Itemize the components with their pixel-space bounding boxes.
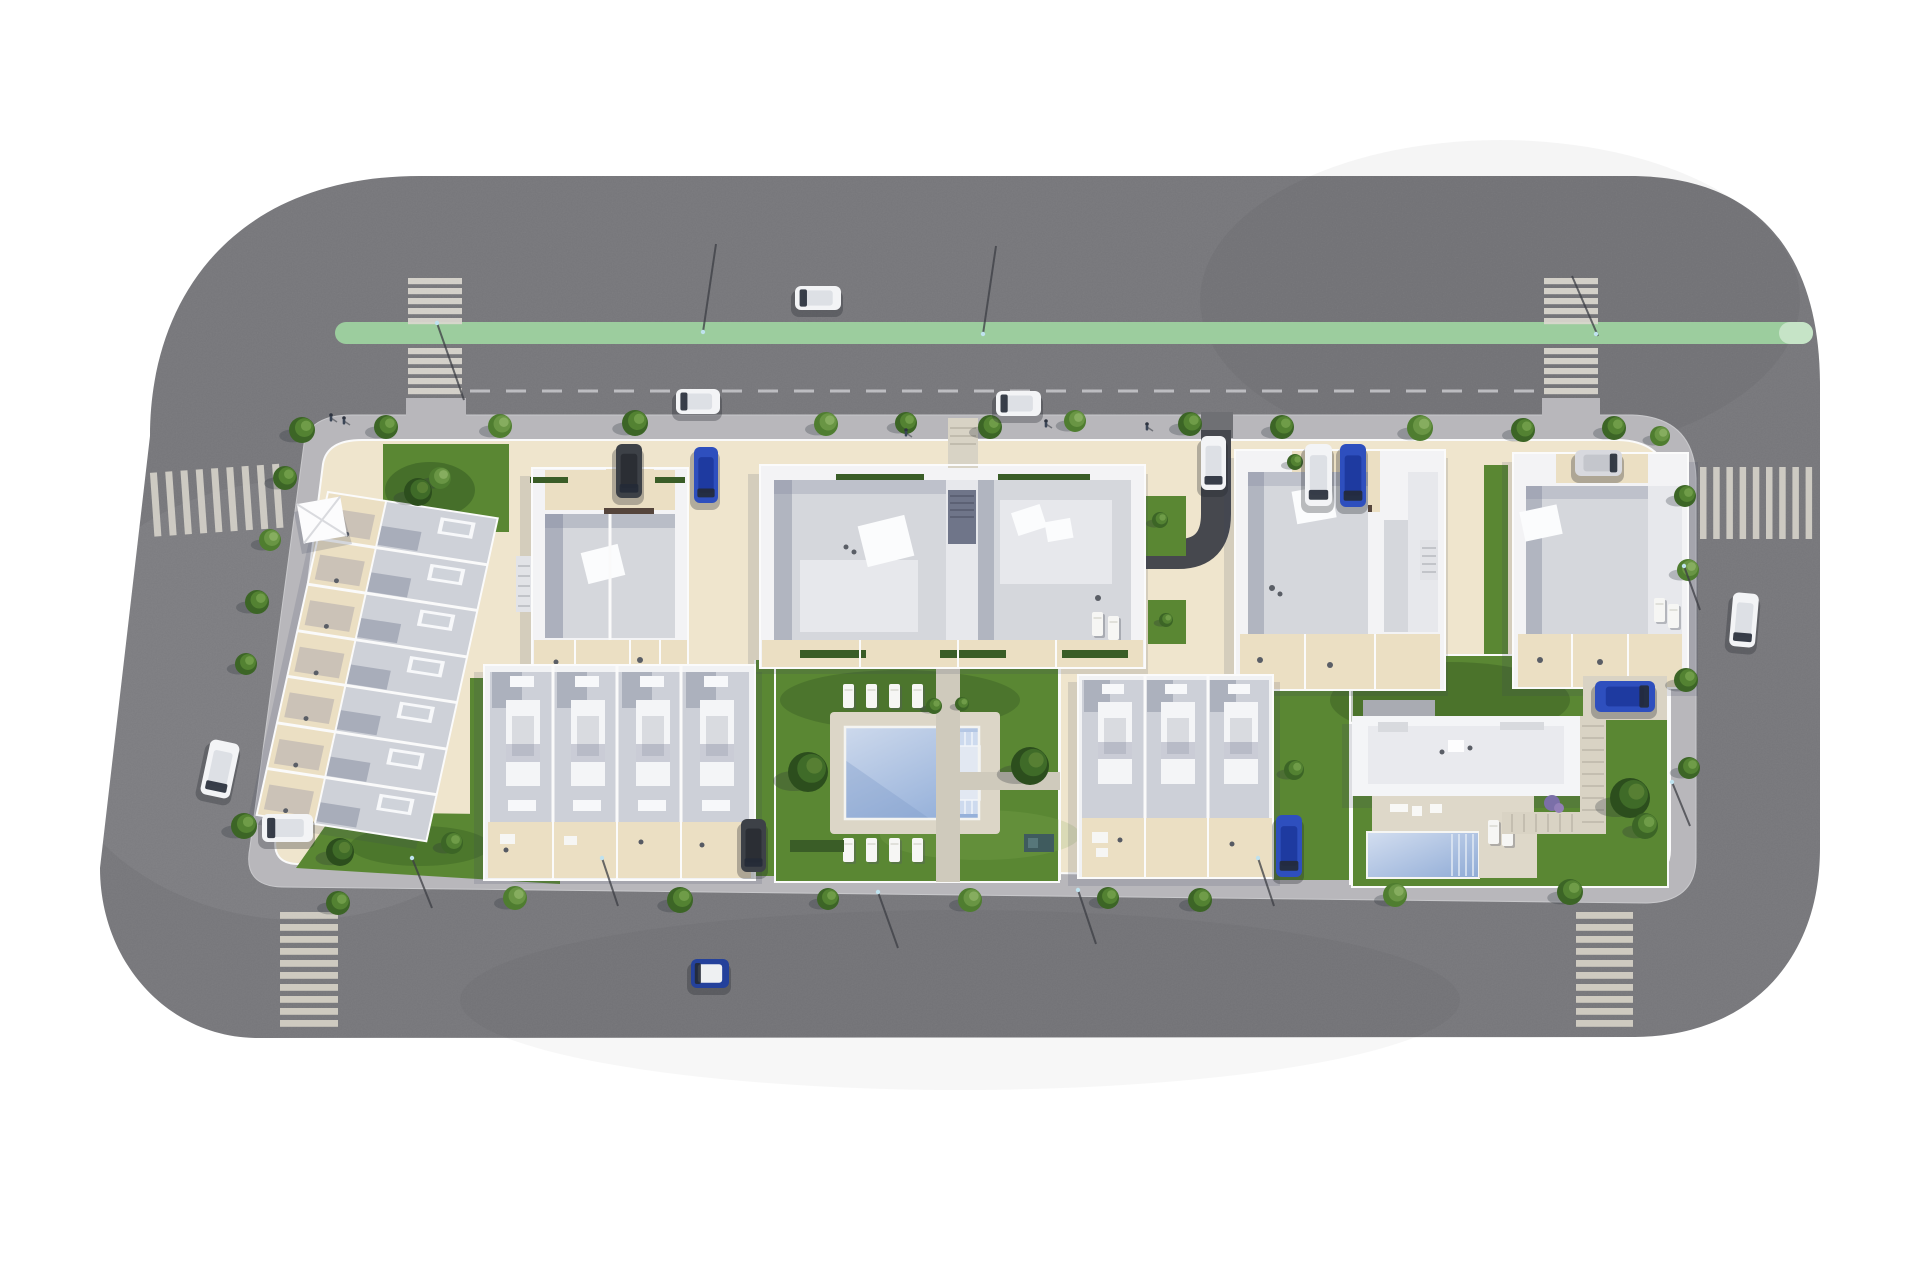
block-f-u1-sky — [1102, 684, 1124, 694]
tree-canopy-light — [1028, 752, 1043, 767]
crosswalk-stripe — [1576, 996, 1633, 1003]
car-white-internal-driveway — [1197, 436, 1228, 497]
crosswalk-stripe — [408, 348, 462, 354]
lamp-head — [410, 856, 414, 860]
tree-canopy-light — [339, 842, 350, 853]
lamp-head — [435, 321, 439, 325]
crosswalk-stripe — [280, 984, 338, 991]
car-windshield — [1733, 632, 1752, 642]
block-f-gardens — [1082, 818, 1272, 878]
car-roof — [271, 819, 304, 837]
lounger-body — [866, 838, 877, 862]
car-windshield — [1309, 490, 1328, 500]
crosswalk-stripe — [1779, 467, 1786, 539]
block-e-u4-shmid — [700, 744, 734, 762]
tree-canopy-light — [1687, 562, 1696, 571]
block-a-roof-shadow-left — [545, 514, 563, 638]
car-windshield — [745, 858, 763, 866]
car-roof — [1606, 687, 1644, 707]
block-e-furniture — [700, 843, 705, 848]
tree-canopy-light — [1685, 671, 1695, 681]
block-e-gardens — [488, 822, 751, 878]
lamp-head — [1076, 888, 1080, 892]
lamp-head — [1594, 332, 1598, 336]
lounger-body — [843, 838, 854, 862]
tree-canopy-light — [1074, 413, 1083, 422]
pedestrian-body — [1146, 425, 1149, 431]
van-dark-block-e — [737, 819, 768, 879]
block-e-u2-sky2 — [573, 800, 601, 811]
crosswalk-stripe — [1766, 467, 1773, 539]
car-white-left-driveway — [258, 814, 315, 849]
car-white-right-road — [1724, 592, 1761, 656]
crosswalk-stripe — [1576, 912, 1633, 919]
crosswalk-stripe — [1544, 278, 1598, 284]
block-f-u3-sky — [1228, 684, 1250, 694]
villa-roof-furniture — [1440, 750, 1445, 755]
tree-canopy-light — [256, 593, 266, 603]
crosswalk-stripe — [280, 936, 338, 943]
crosswalk-stripe — [280, 972, 338, 979]
lounger-body — [1668, 604, 1679, 628]
block-a-furniture — [554, 660, 559, 665]
crosswalk-stripe — [1576, 1020, 1633, 1027]
crosswalk-stripe — [1576, 1008, 1633, 1015]
crosswalk-stripe — [280, 996, 338, 1003]
block-b-lounger — [1108, 616, 1121, 642]
block-b-garden-hedge-2 — [940, 650, 1006, 658]
crosswalk-stripe — [1544, 378, 1598, 384]
crosswalk-stripe — [1576, 984, 1633, 991]
tree-canopy-light — [1644, 817, 1654, 827]
car-roof — [1583, 455, 1613, 472]
car-blue-villa-driveway — [1591, 681, 1657, 719]
tree-canopy-light — [634, 414, 644, 424]
crosswalk-stripe — [1544, 288, 1598, 294]
lamp-head — [1670, 780, 1674, 784]
crosswalk-stripe — [408, 298, 462, 304]
car-windshield — [680, 393, 687, 411]
block-f-u2-sky — [1165, 684, 1187, 694]
tree-canopy-light — [1688, 760, 1697, 769]
block-b-hedge-2 — [998, 474, 1090, 480]
tree-canopy-light — [1569, 883, 1579, 893]
block-e-u1-sky2 — [508, 800, 536, 811]
villa-lounger — [1488, 820, 1501, 846]
block-e-u1-sky — [510, 676, 534, 687]
car-roof — [803, 290, 832, 305]
block-c-furniture — [1257, 657, 1263, 663]
block-b-furniture — [1095, 595, 1101, 601]
site-plan-rendering — [0, 0, 1920, 1280]
tree-canopy-light — [1281, 418, 1291, 428]
crosswalk-stripe — [1544, 388, 1598, 394]
villa-roof-inner — [1368, 726, 1564, 784]
pedestrian-body — [1045, 422, 1048, 428]
block-e-furniture — [639, 840, 644, 845]
pool-lounger — [912, 684, 925, 710]
tree-canopy-light — [905, 415, 914, 424]
block-c-roof-shadow-l — [1248, 472, 1264, 634]
car-roof — [1310, 455, 1327, 495]
pool-lounger — [843, 684, 856, 710]
crosswalk-stripe — [408, 308, 462, 314]
lamp-head — [600, 856, 604, 860]
car-roof — [1004, 396, 1033, 412]
scene-root — [40, 140, 1820, 1090]
block-a-hedge-1 — [530, 477, 568, 483]
crosswalk-stripe — [1544, 348, 1598, 354]
block-b-hedge-1 — [836, 474, 924, 480]
car-windshield — [1639, 685, 1649, 707]
pool-lounger — [889, 838, 902, 864]
car-white-parked-lane-2 — [992, 391, 1043, 423]
tree-canopy-light — [1189, 415, 1199, 425]
crosswalk-stripe — [1544, 368, 1598, 374]
tree-canopy-light — [1419, 419, 1429, 429]
block-f-u3-shmid — [1224, 742, 1258, 759]
block-b-roof-shadow-l — [774, 480, 792, 640]
block-e-furniture — [504, 848, 509, 853]
block-e-u4-sky2 — [702, 800, 730, 811]
car-blue-block-a — [690, 447, 720, 510]
road-dark-patch-1 — [1200, 140, 1800, 460]
car-windshield — [1610, 454, 1618, 473]
pool-lounger — [889, 684, 902, 710]
tree-canopy-light — [451, 835, 460, 844]
car-windshield — [1280, 861, 1299, 871]
car-roof — [1345, 455, 1362, 495]
lounger-body — [866, 684, 877, 708]
crosswalk-stripe — [1726, 467, 1733, 539]
car-roof — [621, 454, 638, 489]
block-f-patio-table — [1092, 832, 1108, 843]
lounger-body — [889, 838, 900, 862]
car-silver-block-d — [1571, 450, 1624, 483]
pool-lounger — [866, 838, 879, 864]
car-roof — [1281, 826, 1298, 866]
bike-lane-end-cap — [1779, 322, 1813, 344]
block-b-garden-hedge-3 — [1062, 650, 1128, 658]
block-d-lounger — [1654, 598, 1667, 624]
car-windshield — [800, 289, 807, 306]
tree-canopy-light — [1659, 429, 1667, 437]
sidewalk-ramp-top-right — [1542, 398, 1600, 418]
crosswalk-stripe — [1576, 960, 1633, 967]
tree-canopy-light — [1394, 886, 1404, 896]
car-roof — [698, 457, 713, 493]
crosswalk-stripe — [1576, 936, 1633, 943]
villa-terrace-table — [1390, 804, 1408, 812]
pool-path-vertical — [936, 658, 960, 882]
tree-canopy-light — [825, 415, 835, 425]
crosswalk-stripe — [1792, 467, 1799, 539]
villa-roof-furniture — [1468, 746, 1473, 751]
block-a-hedge-2 — [655, 477, 685, 483]
block-e-u3-shmid — [636, 744, 670, 762]
tree-canopy-light — [1628, 784, 1644, 800]
block-c-furniture — [1269, 585, 1275, 591]
block-e-u4-sky — [704, 676, 728, 687]
block-c-furniture — [1278, 592, 1283, 597]
van-dark-block-a — [612, 444, 644, 505]
car-windshield — [1344, 491, 1363, 501]
block-f-furniture — [1230, 842, 1235, 847]
block-d-furniture — [1537, 657, 1543, 663]
car-white-parked-lane-1 — [672, 389, 722, 421]
pool-lounger — [866, 684, 879, 710]
crosswalk-stripe — [408, 378, 462, 384]
block-e-u3-sky — [640, 676, 664, 687]
tree-canopy-light — [1199, 891, 1209, 901]
tree-canopy-light — [243, 817, 253, 827]
crosswalk-stripe — [280, 948, 338, 955]
villa-pool — [1367, 832, 1479, 878]
car-blue-bottom-road — [687, 959, 731, 995]
lounger-body — [1108, 616, 1119, 640]
site-plan-image — [0, 0, 1920, 1280]
tree-canopy-light — [933, 700, 939, 706]
tree-canopy-light — [439, 470, 448, 479]
block-d-lounger — [1668, 604, 1681, 630]
crosswalk-stripe — [1740, 467, 1747, 539]
car-roof — [746, 829, 762, 863]
block-c-furniture — [1327, 662, 1333, 668]
car-windshield — [267, 818, 275, 838]
crosswalk-stripe — [1806, 467, 1813, 539]
crosswalk-stripe — [408, 388, 462, 394]
pool-lounger — [843, 838, 856, 864]
tree-canopy-light — [1107, 890, 1116, 899]
car-roof — [1206, 446, 1222, 481]
crosswalk-stripe — [408, 278, 462, 284]
car-roof — [684, 394, 712, 410]
lamp-head — [1682, 564, 1686, 568]
car-windshield — [1205, 476, 1223, 485]
crosswalk-left-street — [150, 464, 284, 537]
block-d-roof-shadow-top — [1526, 486, 1648, 499]
car-windshield — [620, 484, 639, 493]
tree-canopy-light — [679, 891, 689, 901]
crosswalk-stripe — [1544, 298, 1598, 304]
car-windshield — [695, 963, 701, 984]
block-a-furniture — [637, 657, 643, 663]
car-windshield — [1001, 395, 1008, 413]
crosswalk-stripe — [408, 288, 462, 294]
lounger-body — [1654, 598, 1665, 622]
lounger-body — [1488, 820, 1499, 844]
block-b-terrace-l — [800, 560, 918, 632]
bike-lane-green-strip — [335, 322, 1813, 344]
tree-canopy-light — [337, 894, 347, 904]
block-e-u1-shmid — [506, 744, 540, 762]
block-b-roof-shadow-r — [978, 480, 994, 640]
villa-skylight-1 — [1378, 722, 1408, 732]
crosswalk-stripe — [1576, 924, 1633, 931]
car-roof — [698, 964, 722, 983]
block-e-patio-table — [564, 836, 577, 845]
block-e-patio-table — [500, 834, 515, 844]
crosswalk-stripe — [280, 924, 338, 931]
tree-canopy-light — [301, 421, 311, 431]
lounger-body — [843, 684, 854, 708]
crosswalk-stripe — [280, 960, 338, 967]
tree-canopy-light — [969, 891, 979, 901]
tree-canopy-light — [385, 418, 395, 428]
block-f-furniture — [1118, 838, 1123, 843]
tree-canopy-light — [269, 532, 278, 541]
tree-canopy-light — [1684, 488, 1693, 497]
villa-skylight-2 — [1500, 722, 1544, 730]
block-e-u3-sky2 — [638, 800, 666, 811]
tree-canopy-light — [417, 482, 428, 493]
villa-terrace-seat — [1412, 806, 1422, 816]
tree-canopy-light — [1165, 615, 1171, 621]
pool-lounger — [912, 838, 925, 864]
pool-hedge — [790, 840, 844, 852]
tree-canopy-light — [1522, 421, 1532, 431]
block-c-stairs — [1420, 540, 1438, 580]
car-blue-block-c — [1336, 444, 1368, 514]
tree-canopy-light — [1293, 763, 1301, 771]
crosswalk-stripe — [280, 1020, 338, 1027]
lamp-head — [876, 890, 880, 894]
car-white-block-c — [1301, 444, 1334, 513]
block-b-entry-steps — [948, 418, 978, 468]
tree-canopy-light — [499, 417, 509, 427]
lounger-body — [912, 838, 923, 862]
lamp-head — [1256, 856, 1260, 860]
tree-canopy-light — [1613, 419, 1623, 429]
crosswalk-stripe — [1713, 467, 1720, 539]
block-a-stairs — [516, 556, 532, 612]
block-d-furniture — [1597, 659, 1603, 665]
tree-canopy-light — [1159, 514, 1165, 520]
crosswalk-stripe — [408, 358, 462, 364]
pool-equipment-inner — [1028, 838, 1038, 848]
tree-canopy-light — [284, 469, 294, 479]
block-b-furniture — [852, 550, 857, 555]
crosswalk-stripe — [1544, 308, 1598, 314]
crosswalk-stripe — [280, 1008, 338, 1015]
villa-steps-horizontal — [1502, 812, 1580, 834]
block-f-patio-table — [1096, 848, 1108, 857]
car-windshield — [697, 488, 714, 497]
villa-steps-vertical — [1580, 716, 1606, 834]
crosswalk-stripe — [1576, 972, 1633, 979]
pedestrian-body — [905, 431, 908, 437]
crosswalk-stripe — [1700, 467, 1707, 539]
block-b-roof-shadow-top — [774, 480, 946, 494]
tree-canopy-light — [961, 699, 967, 705]
villa-purple-bush-light — [1554, 803, 1564, 813]
lounger-body — [912, 684, 923, 708]
block-f-u1-shmid — [1098, 742, 1132, 759]
lounger-body — [889, 684, 900, 708]
road-dark-patch-2 — [460, 910, 1460, 1090]
villa-terrace-seat — [1430, 804, 1442, 813]
tree-canopy-light — [1294, 456, 1300, 462]
pedestrian-body — [343, 419, 346, 425]
block-b-garden-hedge-1 — [800, 650, 866, 658]
block-f-u2-shmid — [1161, 742, 1195, 759]
block-e-u2-sky — [575, 676, 599, 687]
tree-canopy-light — [827, 891, 836, 900]
sidewalk-ramp-top-left — [406, 398, 466, 418]
lamp-head — [981, 332, 985, 336]
lounger-body — [1092, 612, 1103, 636]
block-b-lounger — [1092, 612, 1105, 638]
tree-canopy-light — [514, 889, 524, 899]
villa-roof-table — [1448, 740, 1464, 752]
block-e-u2-shmid — [571, 744, 605, 762]
crosswalk-stripe — [1576, 948, 1633, 955]
tree-canopy-light — [245, 656, 254, 665]
crosswalk-stripe — [1753, 467, 1760, 539]
block-a-garage-strip — [604, 508, 654, 514]
crosswalk-stripe — [1544, 358, 1598, 364]
block-b-furniture — [844, 545, 849, 550]
lamp-head — [701, 330, 705, 334]
tree-canopy-light — [806, 758, 822, 774]
pedestrian-body — [330, 416, 333, 422]
villa-gray-deck — [1363, 700, 1435, 718]
car-blue-block-f — [1272, 815, 1304, 884]
crosswalk-right-street — [1700, 467, 1812, 539]
car-white-top-road — [791, 286, 843, 317]
